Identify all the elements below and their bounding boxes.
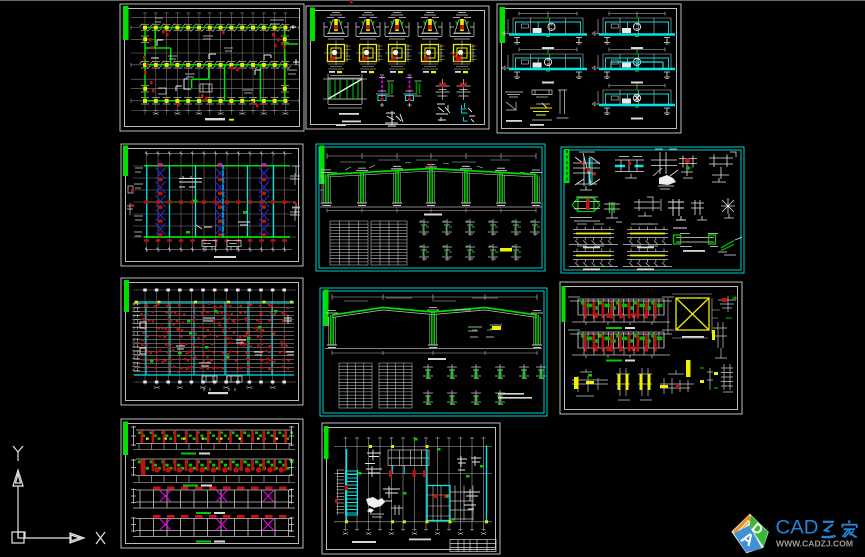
- svg-text:CAD: CAD: [776, 517, 819, 539]
- svg-text:WWW.CADZJ.COM: WWW.CADZJ.COM: [776, 540, 853, 549]
